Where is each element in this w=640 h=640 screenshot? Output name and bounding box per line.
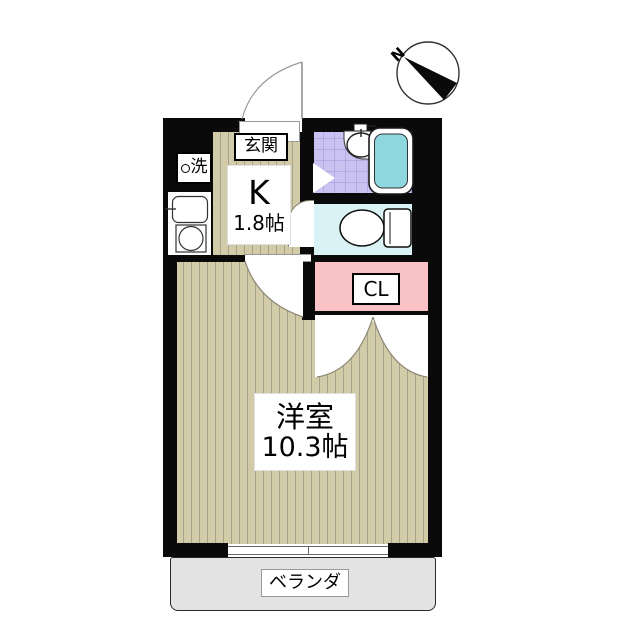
wall-bottom-left xyxy=(163,543,228,557)
closet-label: CL xyxy=(352,273,400,305)
kitchen-bath-wall-upper xyxy=(300,132,314,203)
compass-north-label: N xyxy=(387,44,408,66)
closet-label-text: CL xyxy=(363,278,388,300)
nook-closet-wall xyxy=(302,262,315,320)
western-room-size-text: 10.3帖 xyxy=(261,433,348,463)
genkan-label-text: 玄関 xyxy=(244,137,278,156)
wall-right xyxy=(428,118,442,557)
window-center-mullion xyxy=(308,546,309,555)
western-room-label: 洋室 10.3帖 xyxy=(254,393,356,471)
kitchen-label: K 1.8帖 xyxy=(227,165,291,245)
veranda-label: ベランダ xyxy=(261,569,349,597)
kitchen-size-text: 1.8帖 xyxy=(233,212,285,234)
kitchen-niche-wall xyxy=(177,132,213,258)
wall-bottom-right xyxy=(388,543,442,557)
western-room-label-text: 洋室 xyxy=(276,401,334,433)
closet-door-line xyxy=(315,318,428,319)
entrance-door-arc-icon xyxy=(242,62,302,119)
compass-icon: N xyxy=(387,42,459,104)
bath-toilet-divider xyxy=(300,193,428,204)
kitchen-label-text: K xyxy=(248,175,270,212)
veranda-label-text: ベランダ xyxy=(269,573,341,593)
washer-label: 洗 xyxy=(176,152,212,184)
washer-label-text: 洗 xyxy=(191,158,208,177)
kitchen-room-door-opening xyxy=(245,254,311,262)
wall-top-right xyxy=(302,118,442,132)
kitchen-room-divider xyxy=(163,255,245,262)
wall-left xyxy=(163,118,177,557)
washer-circle-icon xyxy=(181,164,190,173)
bathroom-floor xyxy=(313,132,412,193)
genkan-label: 玄関 xyxy=(234,133,288,161)
toilet-closet-divider xyxy=(300,255,428,262)
toilet-floor xyxy=(313,204,412,255)
floorplan: N 玄関 K 1.8帖 洗 CL 洋室 10.3帖 ベランダ xyxy=(0,0,640,640)
